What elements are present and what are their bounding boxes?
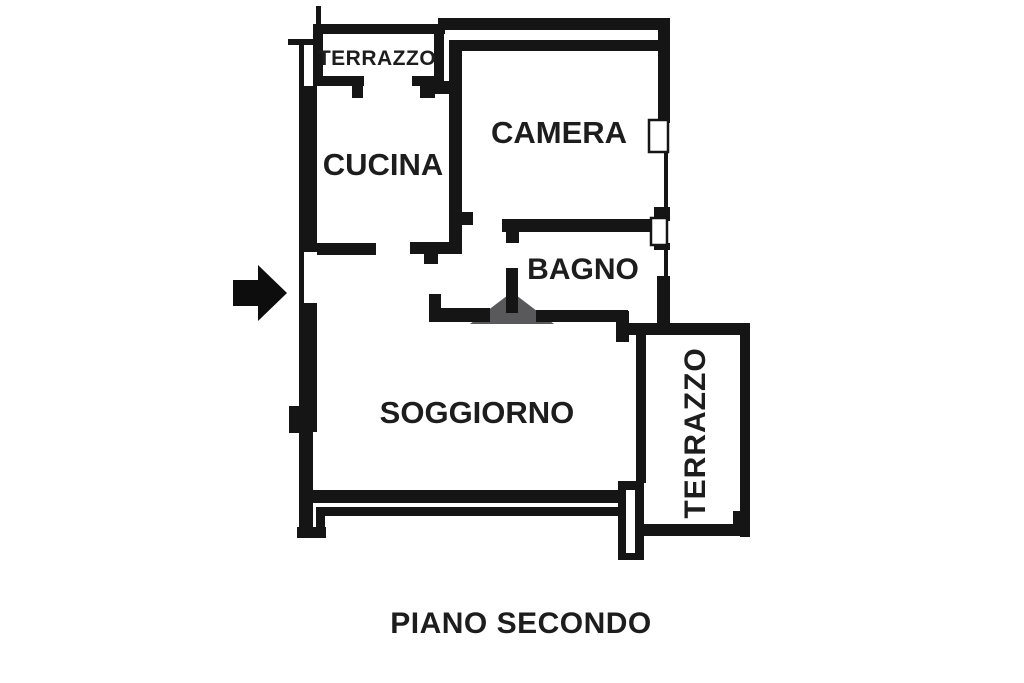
floor-caption: PIANO SECONDO [390, 607, 652, 640]
room-label-terrazzo-right: TERRAZZO [679, 347, 712, 518]
room-label-camera: CAMERA [491, 115, 627, 150]
room-label-terrazzo-top: TERRAZZO [318, 47, 436, 70]
floor-plan: TERRAZZO CUCINA CAMERA BAGNO SOGGIORNO T… [0, 0, 1024, 683]
window-icon [651, 218, 667, 245]
room-label-soggiorno: SOGGIORNO [380, 395, 575, 430]
window-icon [649, 120, 668, 152]
wall-slot [626, 490, 635, 553]
room-label-cucina: CUCINA [323, 147, 444, 182]
floor-plan-page: TERRAZZO CUCINA CAMERA BAGNO SOGGIORNO T… [0, 0, 1024, 683]
room-label-bagno: BAGNO [527, 253, 639, 286]
entrance-arrow-icon [233, 265, 287, 321]
